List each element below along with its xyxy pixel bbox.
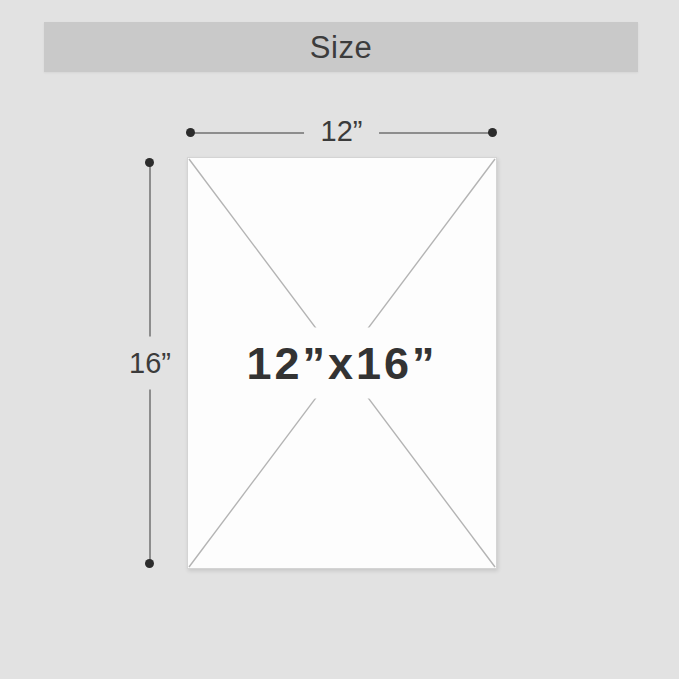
size-placeholder-label: 12”x16” xyxy=(226,328,457,399)
size-diagram-page: Size 12” 16” 12”x16” xyxy=(0,0,679,679)
width-dimension: 12” xyxy=(186,118,497,148)
width-dimension-label: 12” xyxy=(304,115,380,148)
section-header: Size xyxy=(44,22,638,72)
height-dimension: 16” xyxy=(135,158,165,568)
dimension-endpoint-dot xyxy=(145,559,154,568)
size-preview-panel: 12”x16” xyxy=(187,157,497,569)
dimension-endpoint-dot xyxy=(145,158,154,167)
height-dimension-label: 16” xyxy=(126,337,174,390)
dimension-endpoint-dot xyxy=(488,128,497,137)
dimension-endpoint-dot xyxy=(186,128,195,137)
section-title: Size xyxy=(310,32,372,63)
